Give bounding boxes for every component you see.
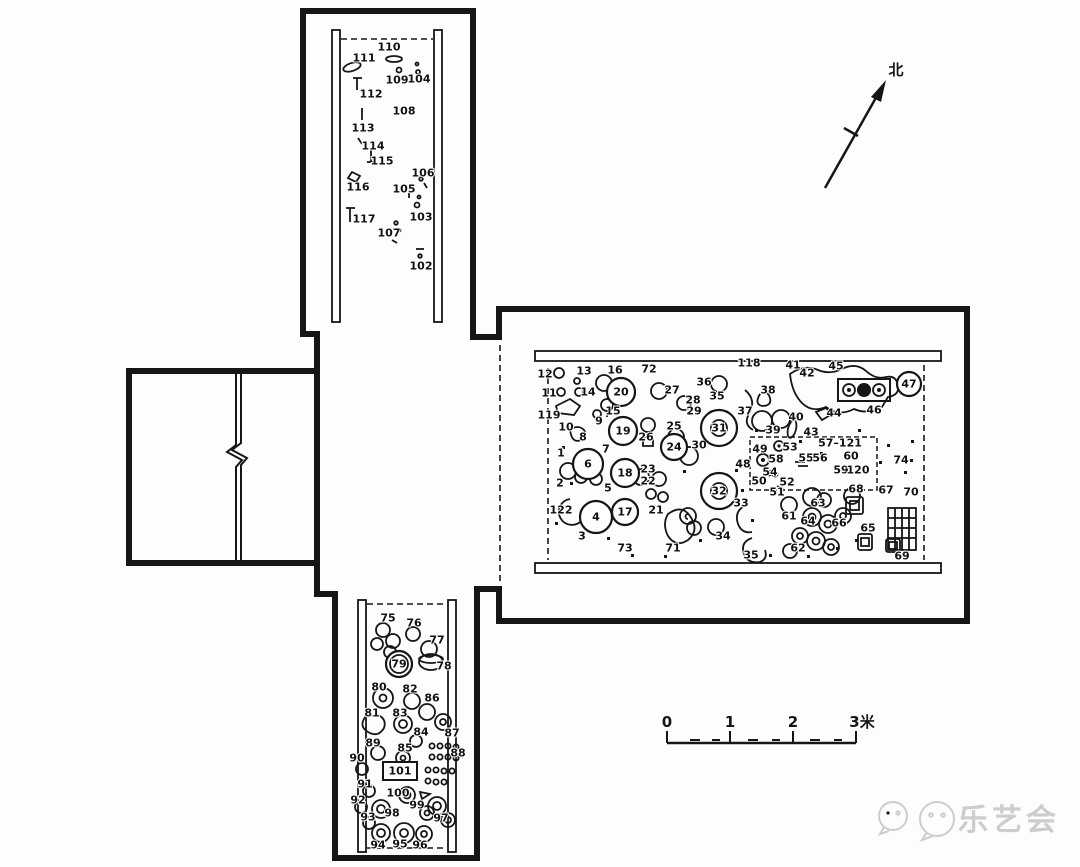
find-number: 61	[781, 510, 796, 523]
break-line-a	[227, 371, 242, 563]
chamber-bottom-ledge	[535, 563, 941, 573]
find-south_corridor-89: 89	[365, 737, 380, 750]
find-number: 92	[350, 794, 365, 807]
scale-bar: 0 1 2 3米	[662, 713, 876, 743]
find-south_corridor-77: 77	[429, 634, 444, 647]
find-number: 96	[412, 839, 428, 852]
find-number: 64	[800, 515, 816, 528]
find-number: 13	[576, 365, 591, 378]
find-south_corridor-87: 87	[444, 727, 459, 740]
find-number: 74	[893, 454, 909, 467]
find-main_chamber-19: 19	[609, 417, 637, 445]
find-north_corridor-104: 104	[408, 73, 431, 86]
find-main_chamber-46: 46	[866, 404, 882, 417]
find-number: 3	[578, 530, 586, 543]
find-main_chamber-24: 24	[661, 434, 687, 460]
find-number: 46	[866, 404, 882, 417]
find-number: 120	[847, 464, 870, 477]
find-main_chamber-8: 8	[579, 431, 587, 444]
find-number: 53	[782, 441, 797, 454]
find-number: 107	[378, 227, 401, 240]
find-main_chamber-38: 38	[760, 384, 775, 397]
find-south_corridor-76: 76	[406, 617, 422, 630]
find-south_corridor-88: 88	[450, 747, 465, 760]
find-main_chamber-12: 12	[537, 368, 552, 381]
find-main_chamber-18: 18	[611, 459, 639, 487]
find-number: 38	[760, 384, 775, 397]
find-number: 17	[617, 506, 632, 519]
find-main_chamber-57–121: 57–121	[818, 437, 862, 450]
find-number: 33	[733, 497, 748, 510]
find-number: 67	[878, 484, 893, 497]
find-number: 116	[347, 181, 370, 194]
find-number: 91	[357, 778, 372, 791]
find-number: 34	[715, 530, 731, 543]
find-main_chamber-56: 56	[812, 452, 828, 465]
find-main_chamber-62: 62	[790, 542, 805, 555]
find-number: 29	[686, 405, 701, 418]
find-main_chamber-47: 47	[897, 372, 921, 396]
tomb-plan-page: 1101111091041121081131141151161061051031…	[0, 0, 1080, 867]
watermark: 乐艺会	[879, 802, 1060, 840]
find-number: 118	[738, 357, 761, 370]
find-south_corridor-86: 86	[424, 692, 440, 705]
find-number: 112	[360, 88, 383, 101]
find-main_chamber-31: 31	[701, 410, 737, 446]
find-north_corridor-107: 107	[378, 227, 401, 240]
find-main_chamber-120: 120	[847, 464, 870, 477]
find-number: 57–121	[818, 437, 862, 450]
find-number: 35	[743, 549, 758, 562]
find-main_chamber-3: 3	[578, 530, 586, 543]
find-main_chamber-119: 119	[538, 409, 561, 422]
find-number: 27	[664, 384, 679, 397]
find-south_corridor-78: 78	[436, 660, 451, 673]
find-number: 81	[364, 707, 379, 720]
find-south_corridor-98: 98	[384, 807, 399, 820]
north-arrow-line	[825, 87, 882, 188]
find-main_chamber-10: 10	[558, 421, 574, 434]
find-number: 62	[790, 542, 805, 555]
find-number: 49	[752, 443, 767, 456]
find-number: 45	[828, 360, 843, 373]
find-north_corridor-102: 102	[410, 260, 433, 273]
find-main_chamber-37: 37	[737, 405, 752, 418]
find-number: 66	[831, 517, 847, 530]
find-number: 32	[711, 485, 726, 498]
find-south_corridor-95: 95	[392, 838, 407, 851]
find-south_corridor-96: 96	[412, 839, 428, 852]
find-number: 42	[799, 367, 814, 380]
find-north_corridor-114: 114	[362, 140, 385, 153]
find-main_chamber-42: 42	[799, 367, 814, 380]
find-number: 102	[410, 260, 433, 273]
find-main_chamber-35: 35	[709, 390, 724, 403]
find-number: 101	[389, 765, 412, 778]
find-south_corridor-90: 90	[349, 752, 365, 765]
find-number: 31	[711, 422, 726, 435]
scale-label-2: 2	[788, 713, 798, 731]
find-number: 108	[393, 105, 416, 118]
find-number: 9	[595, 415, 603, 428]
find-number: 65	[860, 522, 875, 535]
find-number: 85	[397, 742, 412, 755]
break-line-b	[232, 371, 247, 563]
north-rail-left	[332, 30, 340, 322]
find-number: 73	[617, 542, 632, 555]
watermark-text: 乐艺会	[958, 803, 1060, 838]
west-chamber	[227, 371, 247, 563]
find-main_chamber-118: 118	[738, 357, 761, 370]
find-main_chamber-29: 29	[686, 405, 701, 418]
find-south_corridor-82: 82	[402, 683, 417, 696]
find-south_corridor-100: 100	[387, 787, 410, 800]
find-main_chamber-61: 61	[781, 510, 796, 523]
find-number: 25	[666, 420, 681, 433]
find-number: 51	[769, 486, 784, 499]
find-main_chamber-13: 13	[576, 365, 591, 378]
find-main_chamber-69: 69	[894, 550, 909, 563]
find-main_chamber-16: 16	[607, 364, 623, 377]
find-main_chamber-4: 4	[580, 501, 612, 533]
find-main_chamber-68: 68	[848, 483, 863, 496]
find-south_corridor-91: 91	[357, 778, 372, 791]
find-main_chamber-1: 1	[557, 447, 565, 460]
find-number: 54	[762, 466, 778, 479]
find-main_chamber-43: 43	[803, 426, 818, 439]
find-number: 97	[433, 812, 448, 825]
find-main_chamber-17: 17	[612, 499, 638, 525]
find-north_corridor-109: 109	[386, 74, 409, 87]
find-number: 58	[768, 453, 783, 466]
find-main_chamber-21: 21	[648, 504, 663, 517]
find-main_chamber-35: 35	[743, 549, 758, 562]
find-number: 80	[371, 681, 387, 694]
find-number: 7	[602, 443, 610, 456]
find-number: 26	[638, 431, 654, 444]
find-main_chamber-63: 63	[810, 497, 825, 510]
find-number: 114	[362, 140, 385, 153]
find-main_chamber-122: 122	[550, 504, 573, 517]
find-south_corridor-84: 84	[413, 726, 429, 739]
find-number: 98	[384, 807, 399, 820]
find-south_corridor-93: 93	[360, 811, 375, 824]
find-south_corridor-94: 94	[370, 839, 386, 852]
north-arrow-head	[871, 80, 886, 102]
find-main_chamber-25: 25	[666, 420, 681, 433]
find-number: 94	[370, 839, 386, 852]
find-south_corridor-81: 81	[364, 707, 379, 720]
find-south_corridor-80: 80	[371, 681, 387, 694]
find-number: 20	[613, 386, 629, 399]
find-number: 70	[903, 486, 919, 499]
find-number: 56	[812, 452, 828, 465]
find-main_chamber-45: 45	[828, 360, 843, 373]
find-number: 69	[894, 550, 909, 563]
find-number: 88	[450, 747, 465, 760]
find-main_chamber-53: 53	[782, 441, 797, 454]
find-number: 71	[665, 542, 680, 555]
find-number: 86	[424, 692, 440, 705]
find-number: 5	[604, 482, 612, 495]
find-main_chamber-36: 36	[696, 376, 712, 389]
find-main_chamber-32: 32	[701, 473, 737, 509]
find-number: 1	[557, 447, 565, 460]
find-number: 19	[615, 425, 630, 438]
find-number: 104	[408, 73, 431, 86]
find-north_corridor-108: 108	[393, 105, 416, 118]
find-main_chamber-72: 72	[641, 363, 656, 376]
find-number: 10	[558, 421, 574, 434]
find-main_chamber-48: 48	[735, 458, 750, 471]
find-number: 2	[556, 477, 564, 490]
find-number: 84	[413, 726, 429, 739]
find-number: 18	[617, 467, 632, 480]
find-number: 47	[901, 378, 916, 391]
find-main_chamber-51: 51	[769, 486, 784, 499]
find-number: 11	[541, 387, 556, 400]
outer-walls	[129, 11, 967, 858]
find-south_corridor-99: 99	[409, 799, 424, 812]
find-south_corridor-92: 92	[350, 794, 365, 807]
find-north_corridor-103: 103	[410, 211, 433, 224]
tomb-outline	[129, 11, 967, 858]
find-south_corridor-85: 85	[397, 742, 412, 755]
find-main_chamber-20: 20	[607, 378, 635, 406]
scale-label-0: 0	[662, 713, 672, 731]
find-number: 115	[371, 155, 394, 168]
wechat-bubbles-icon	[879, 802, 954, 840]
find-main_chamber-5: 5	[604, 482, 612, 495]
find-number: 111	[353, 52, 376, 65]
find-main_chamber-67: 67	[878, 484, 893, 497]
scale-label-3: 3米	[849, 713, 875, 731]
find-main_chamber-27: 27	[664, 384, 679, 397]
find-number: 99	[409, 799, 424, 812]
find-number: 93	[360, 811, 375, 824]
find-north_corridor-106: 106	[412, 167, 435, 180]
find-number: 106	[412, 167, 435, 180]
find-number: 21	[648, 504, 663, 517]
find-number: 79	[391, 658, 406, 671]
find-main_chamber-14: 14	[580, 386, 596, 399]
tomb-plan-svg: 1101111091041121081131141151161061051031…	[0, 0, 1080, 867]
find-main_chamber-73: 73	[617, 542, 632, 555]
find-north_corridor-113: 113	[352, 122, 375, 135]
find-main_chamber-7: 7	[602, 443, 610, 456]
find-number: 83	[392, 707, 407, 720]
find-main_chamber-33: 33	[733, 497, 748, 510]
find-north_corridor-115: 115	[371, 155, 394, 168]
find-number: 90	[349, 752, 365, 765]
find-north_corridor-105: 105	[393, 183, 416, 196]
find-north_corridor-111: 111	[353, 52, 376, 65]
north-rail-right	[434, 30, 442, 322]
find-main_chamber-66: 66	[831, 517, 847, 530]
find-number: 14	[580, 386, 596, 399]
find-main_chamber-9: 9	[595, 415, 603, 428]
find-number: 82	[402, 683, 417, 696]
find-main_chamber-40: 40	[788, 411, 804, 424]
find-number: 6	[584, 458, 592, 471]
north-label: 北	[888, 61, 903, 79]
find-north_corridor-116: 116	[347, 181, 370, 194]
find-number: 68	[848, 483, 863, 496]
find-main_chamber-65: 65	[860, 522, 875, 535]
find-number: 24	[666, 441, 682, 454]
find-number: 63	[810, 497, 825, 510]
find-number: 103	[410, 211, 433, 224]
find-main_chamber-6: 6	[573, 449, 603, 479]
find-number: 78	[436, 660, 451, 673]
find-main_chamber-44: 44	[826, 407, 842, 420]
find-number: 43	[803, 426, 818, 439]
find-number: 35	[709, 390, 724, 403]
find-number: 100	[387, 787, 410, 800]
find-number: 12	[537, 368, 552, 381]
find-main_chamber-58: 58	[768, 453, 783, 466]
find-number: 72	[641, 363, 656, 376]
find-number: 109	[386, 74, 409, 87]
find-main_chamber-49: 49	[752, 443, 767, 456]
find-number: 110	[378, 41, 401, 54]
labels-layer: 1101111091041121081131141151161061051031…	[347, 41, 921, 852]
find-main_chamber-2: 2	[556, 477, 564, 490]
find-main_chamber-70: 70	[903, 486, 919, 499]
find-number: 40	[788, 411, 804, 424]
find-number: 60	[843, 450, 859, 463]
find-main_chamber-54: 54	[762, 466, 778, 479]
find-main_chamber-15: 15	[605, 405, 620, 418]
find-north_corridor-117: 117	[353, 213, 376, 226]
find-north_corridor-112: 112	[360, 88, 383, 101]
find-number: 44	[826, 407, 842, 420]
find-main_chamber-39: 39	[765, 424, 780, 437]
scale-label-1: 1	[725, 713, 735, 731]
find-main_chamber-74: 74	[893, 454, 909, 467]
find-south_corridor-79: 79	[386, 651, 412, 677]
find-main_chamber-60: 60	[843, 450, 859, 463]
find-number: 119	[538, 409, 561, 422]
find-number: 36	[696, 376, 712, 389]
find-number: 77	[429, 634, 444, 647]
find-main_chamber-64: 64	[800, 515, 816, 528]
find-number: 48	[735, 458, 750, 471]
find-number: 113	[352, 122, 375, 135]
find-south_corridor-101: 101	[383, 762, 417, 780]
find-main_chamber-26: 26	[638, 431, 654, 444]
find-south_corridor-97: 97	[433, 812, 448, 825]
find-number: 122	[550, 504, 573, 517]
find-number: 95	[392, 838, 407, 851]
find-number: 89	[365, 737, 380, 750]
find-main_chamber-22: 22	[640, 475, 655, 488]
find-number: 37	[737, 405, 752, 418]
north-arrow: 北	[825, 61, 904, 188]
find-main_chamber-11: 11	[541, 387, 556, 400]
find-number: 75	[380, 612, 395, 625]
find-number: 105	[393, 183, 416, 196]
find-main_chamber-71: 71	[665, 542, 680, 555]
find-number: 4	[592, 511, 600, 524]
find-south_corridor-75: 75	[380, 612, 395, 625]
find-number: 16	[607, 364, 623, 377]
find-number: 76	[406, 617, 422, 630]
find-main_chamber-34: 34	[715, 530, 731, 543]
find-number: 39	[765, 424, 780, 437]
find-number: 87	[444, 727, 459, 740]
find-north_corridor-110: 110	[378, 41, 401, 54]
find-number: 117	[353, 213, 376, 226]
find-number: 15	[605, 405, 620, 418]
find-south_corridor-83: 83	[392, 707, 407, 720]
find-number: 8	[579, 431, 587, 444]
find-number: 22	[640, 475, 655, 488]
